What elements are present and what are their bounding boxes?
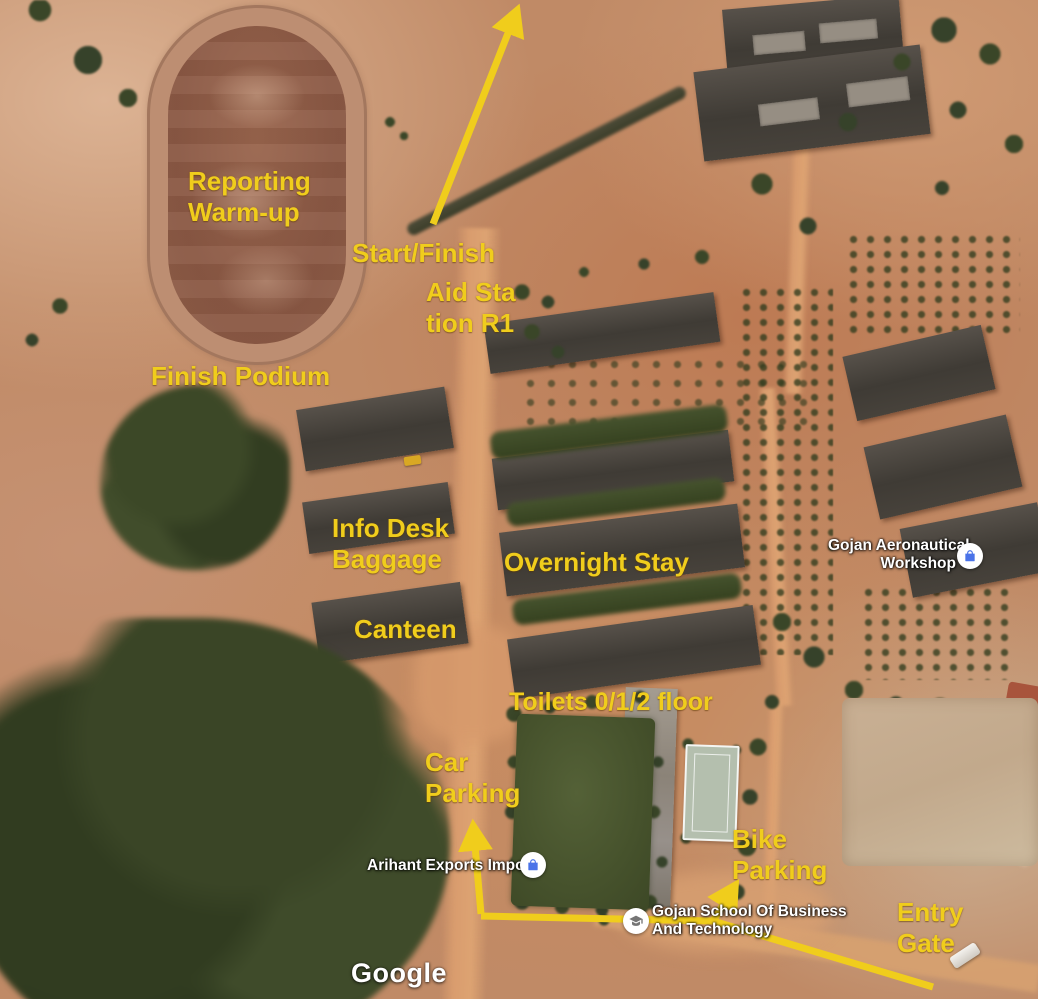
annotation-overnight-stay: Overnight Stay [504,547,689,578]
place-label-line: And Technology [652,921,847,939]
annotation-entry-gate: Entry Gate [897,897,963,959]
place-label-line: Gojan Aeronautical [828,537,956,555]
building-courtyard [758,97,820,126]
shopping-bag-icon[interactable] [957,543,983,569]
orchard-rows [860,585,1010,680]
annotation-line: Canteen [354,614,457,645]
annotation-line: Aid Sta [426,277,516,308]
place-label-line: Arihant Exports Imports [367,857,544,875]
annotation-line: Baggage [332,544,449,575]
annotation-car-parking: Car Parking [425,747,520,809]
place-label-line: Workshop [828,555,956,573]
annotation-line: tion R1 [426,308,516,339]
place-label-gojan-aeronautical-workshop[interactable]: Gojan Aeronautical Workshop [828,537,956,573]
shopping-bag-icon[interactable] [520,852,546,878]
annotation-line: Warm-up [188,197,311,228]
school-icon[interactable] [623,908,649,934]
tree-hedge [405,85,688,238]
annotation-line: Bike [732,824,827,855]
place-label-line: Gojan School Of Business [652,903,847,921]
place-label-gojan-school[interactable]: Gojan School Of Business And Technology [652,903,847,939]
annotation-line: Finish Podium [151,361,330,392]
map-canvas[interactable]: Reporting Warm-up Start/Finish Aid Sta t… [0,0,1038,999]
place-label-arihant-exports-imports[interactable]: Arihant Exports Imports [367,857,544,875]
annotation-start-finish: Start/Finish [352,238,495,269]
annotation-line: Info Desk [332,513,449,544]
annotation-aid-station: Aid Sta tion R1 [426,277,516,339]
annotation-line: Parking [732,855,827,886]
campus-block [864,415,1023,520]
lawn-garden [511,714,656,911]
open-parking-ground [842,698,1038,866]
annotation-line: Gate [897,928,963,959]
campus-building [296,387,454,472]
annotation-line: Reporting [188,166,311,197]
annotation-info-desk-baggage: Info Desk Baggage [332,513,449,575]
annotation-canteen: Canteen [354,614,457,645]
annotation-reporting-warmup: Reporting Warm-up [188,166,311,228]
orchard-rows [845,232,1020,337]
annotation-bike-parking: Bike Parking [732,824,827,886]
forest [0,618,450,999]
annotation-line: Car [425,747,520,778]
annotation-line: Toilets 0/1/2 floor [509,687,713,718]
building-courtyard [752,31,806,55]
building-courtyard [846,76,910,107]
annotation-line: Entry [897,897,963,928]
annotation-line: Parking [425,778,520,809]
annotation-line: Overnight Stay [504,547,689,578]
school-bus [403,455,421,466]
building-courtyard [819,18,879,43]
court-lines [692,753,731,832]
annotation-finish-podium: Finish Podium [151,361,330,392]
annotation-line: Start/Finish [352,238,495,269]
orchard-rows [738,285,833,655]
tree-grove [100,385,290,570]
annotation-toilets: Toilets 0/1/2 floor [509,687,713,718]
campus-block [842,325,995,421]
google-logo[interactable]: Google [351,958,447,989]
